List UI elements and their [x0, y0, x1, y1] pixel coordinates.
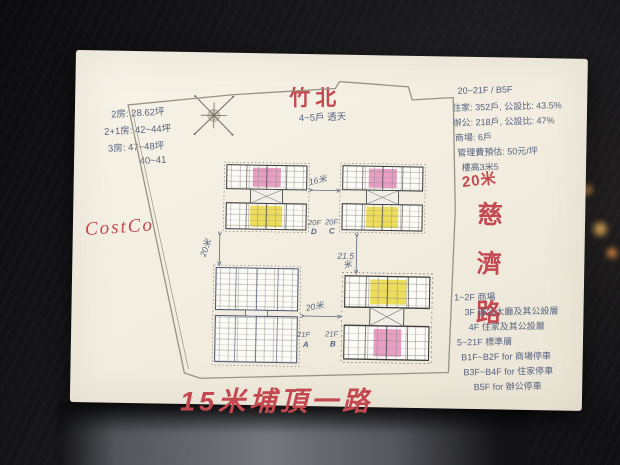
building-B-id: B	[330, 339, 336, 348]
legend-line: B3F~B4F for 住家停車	[463, 364, 559, 381]
legend-line: 3F 辦公大廳及其公設層	[464, 304, 558, 321]
photo-background: 2房: 28.62坪 2+1房: 42~44坪 3房: 47~48坪 40~41…	[0, 0, 620, 465]
road-char: 慈	[475, 195, 506, 232]
building-A-floors: 21F	[296, 330, 310, 339]
road-char: 濟	[474, 244, 505, 281]
bokeh-light	[592, 221, 608, 237]
building-D-id: D	[311, 227, 317, 236]
site-plan-sheet: 2房: 28.62坪 2+1房: 42~44坪 3房: 47~48坪 40~41…	[70, 50, 588, 411]
bokeh-light	[606, 247, 618, 259]
building-B-floors: 21F	[324, 329, 338, 338]
building-D-floors: 20F	[307, 218, 321, 227]
legend-line: B5F for 辦公停車	[474, 379, 560, 395]
building-C-id: C	[329, 226, 335, 235]
building-A-id: A	[302, 340, 309, 349]
dim-left: 20米	[198, 236, 214, 259]
dim-bottom: 20米	[304, 299, 326, 313]
floor-legend: 1~2F 商場 3F 辦公大廳及其公設層 4F 住家及其公設層 5~21F 標準…	[454, 289, 560, 396]
building-A-office	[212, 265, 301, 367]
building-C-floors: 20F	[324, 217, 338, 226]
legend-line: 4F 住家及其公設層	[469, 319, 559, 336]
site-plan-drawing: 16米 20F D 20F C 20米 21.5 米 20米 21F A 21F…	[100, 73, 473, 389]
building-D	[223, 162, 309, 232]
dim-top: 16米	[308, 173, 329, 187]
building-C	[339, 163, 425, 233]
legend-line: 5~21F 標準層	[457, 334, 559, 351]
legend-line: B1F~B2F for 商場停車	[461, 349, 559, 366]
building-B	[341, 272, 433, 363]
